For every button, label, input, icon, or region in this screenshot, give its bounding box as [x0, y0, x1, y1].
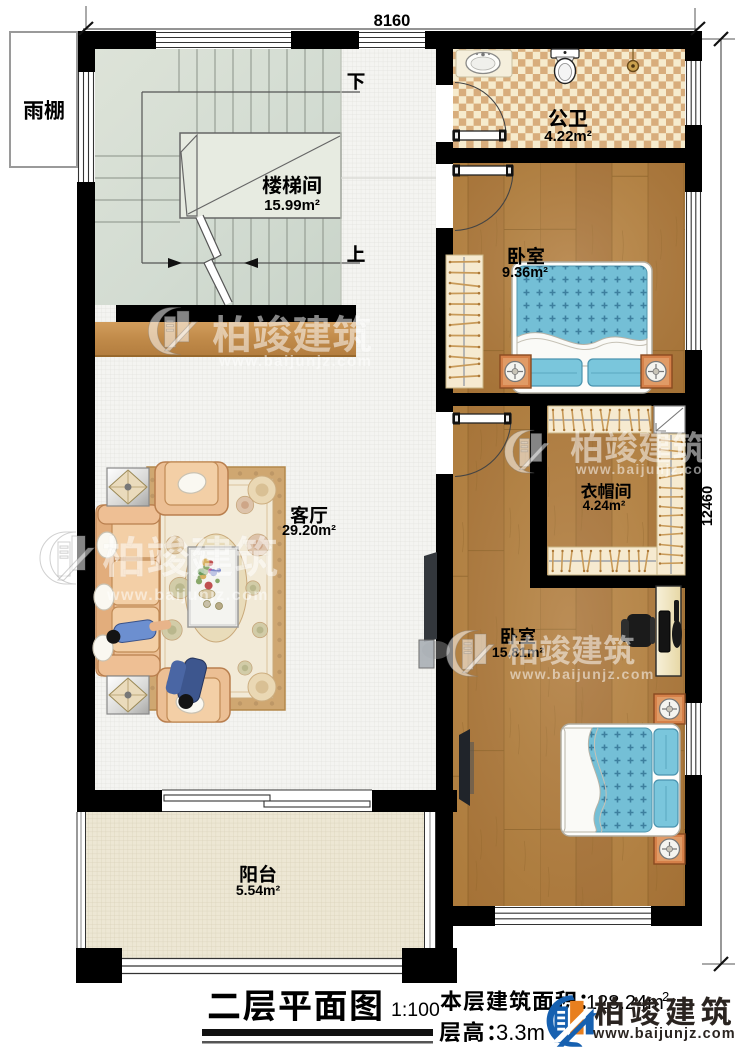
svg-text:4.24m²: 4.24m² [583, 498, 626, 513]
svg-text:5.54m²: 5.54m² [236, 882, 281, 898]
svg-text:9.36m²: 9.36m² [502, 265, 548, 281]
svg-text:www.baijunjz.com: www.baijunjz.com [106, 587, 269, 604]
svg-text:4.22m²: 4.22m² [544, 128, 592, 145]
svg-text:12460: 12460 [700, 486, 716, 526]
svg-text:www.baijunjz.com: www.baijunjz.com [575, 462, 717, 477]
svg-text:29.20m²: 29.20m² [282, 523, 336, 539]
svg-text:1:100: 1:100 [391, 999, 440, 1021]
svg-text:2: 2 [662, 989, 669, 1004]
svg-text:www.baijunjz.com: www.baijunjz.com [509, 666, 655, 682]
svg-text:www.baijunjz.com: www.baijunjz.com [592, 1026, 736, 1042]
svg-text:www.baijunjz.com: www.baijunjz.com [218, 353, 372, 370]
svg-text:3.3m: 3.3m [496, 1020, 545, 1045]
svg-text:8160: 8160 [374, 12, 411, 30]
svg-text:15.99m²: 15.99m² [264, 197, 320, 214]
